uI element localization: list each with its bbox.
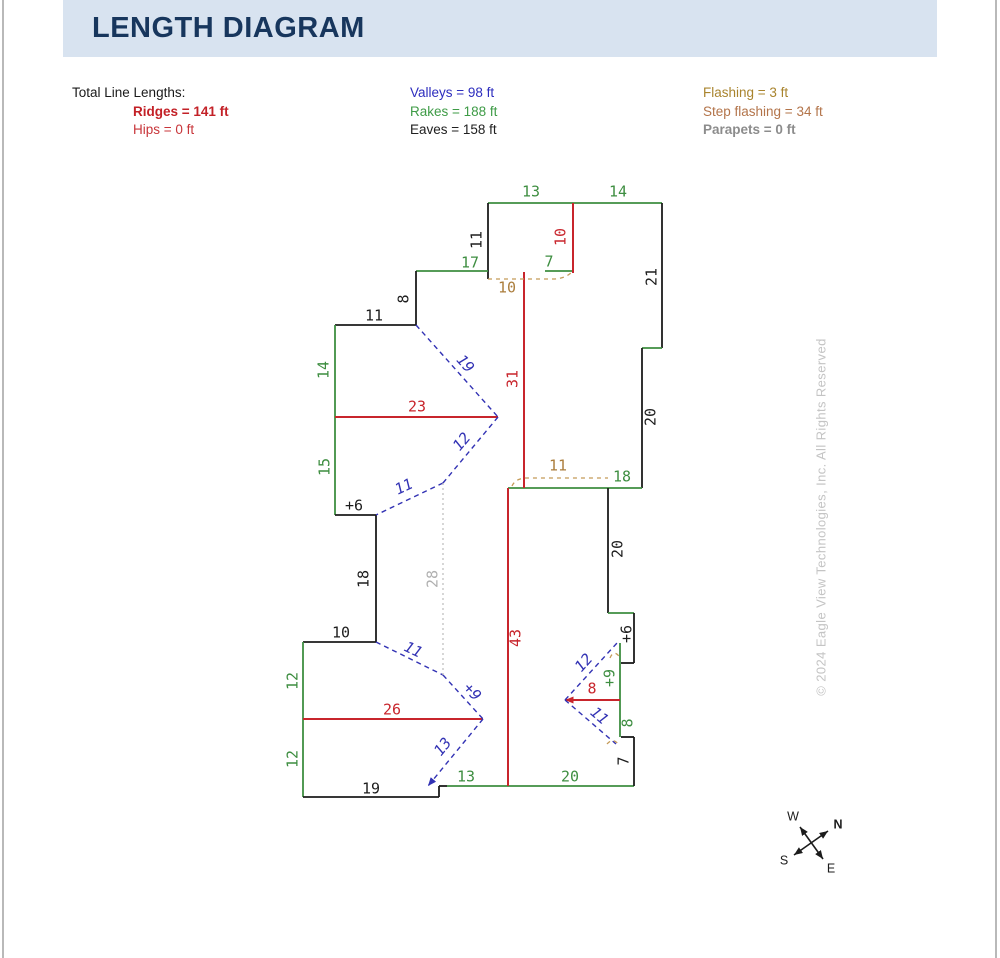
diagram-line-valley bbox=[416, 325, 498, 417]
diagram-label-valley: 12 bbox=[449, 429, 474, 454]
diagram-label-eave: 18 bbox=[355, 570, 373, 588]
diagram-label-eave: 7 bbox=[615, 756, 633, 765]
diagram-label-eave: 20 bbox=[642, 408, 660, 426]
diagram-label-rake: 8 bbox=[619, 718, 637, 727]
diagram-label-eave: +6 bbox=[345, 497, 363, 515]
diagram-label-rake: 18 bbox=[613, 468, 631, 486]
diagram-label-rake: +9 bbox=[601, 669, 619, 687]
diagram-label-rake: 20 bbox=[561, 768, 579, 786]
diagram-label-compass: N bbox=[833, 817, 842, 831]
diagram-label-compass: E bbox=[827, 861, 835, 875]
diagram-label-valley: 11 bbox=[401, 638, 425, 662]
diagram-line-step bbox=[512, 478, 608, 486]
diagram-label-valley: +9 bbox=[460, 679, 485, 704]
diagram-label-eave: 11 bbox=[365, 307, 383, 325]
diagram-label-compass: W bbox=[787, 809, 799, 823]
diagram-label-compass: S bbox=[780, 853, 788, 867]
diagram-label-rake: 15 bbox=[316, 458, 334, 476]
diagram-label-valley: 11 bbox=[392, 475, 416, 499]
diagram-line-valley bbox=[565, 700, 616, 744]
diagram-label-rake: 14 bbox=[315, 361, 333, 379]
diagram-label-eave: 20 bbox=[609, 540, 627, 558]
diagram-label-ridge: 43 bbox=[507, 629, 525, 647]
diagram-label-eave: +6 bbox=[618, 625, 636, 643]
diagram-label-valley: 19 bbox=[453, 351, 478, 376]
diagram-line-compass bbox=[794, 831, 828, 855]
diagram-label-valley: 13 bbox=[430, 734, 455, 759]
compass-rose: WNSE bbox=[780, 809, 843, 875]
diagram-label-rake: 13 bbox=[522, 183, 540, 201]
report-page: LENGTH DIAGRAM Total Line Lengths:Ridges… bbox=[0, 0, 1000, 958]
diagram-label-eave: 21 bbox=[643, 268, 661, 286]
diagram-label-ridge: 26 bbox=[383, 701, 401, 719]
diagram-line-valley bbox=[443, 417, 498, 483]
diagram-label-rake: 14 bbox=[609, 183, 627, 201]
diagram-label-rake: 12 bbox=[284, 750, 302, 768]
diagram-label-eave: 11 bbox=[468, 231, 486, 249]
diagram-label-eave: 19 bbox=[362, 780, 380, 798]
diagram-label-hidden: 28 bbox=[424, 570, 442, 588]
diagram-label-eave: 10 bbox=[332, 624, 350, 642]
diagram-label-rake: 13 bbox=[457, 768, 475, 786]
diagram-label-eave: 8 bbox=[395, 294, 413, 303]
diagram-label-rake: 12 bbox=[284, 672, 302, 690]
diagram-label-valley: 11 bbox=[587, 703, 612, 728]
diagram-label-watermark: © 2024 Eagle View Technologies, Inc. All… bbox=[813, 338, 828, 695]
diagram-label-ridge: 10 bbox=[552, 228, 570, 246]
diagram-label-ridge: 8 bbox=[587, 680, 596, 698]
diagram-label-valley: 12 bbox=[571, 650, 596, 675]
diagram-label-step: 10 bbox=[498, 279, 516, 297]
diagram-label-ridge: 31 bbox=[504, 370, 522, 388]
diagram-label-rake: 7 bbox=[544, 253, 553, 271]
diagram-labels-group: 1314111017710218111419312320121511+61118… bbox=[284, 183, 829, 798]
diagram-label-step: 11 bbox=[549, 457, 567, 475]
diagram-label-rake: 17 bbox=[461, 254, 479, 272]
diagram-svg: 1314111017710218111419312320121511+61118… bbox=[0, 0, 1000, 958]
diagram-label-ridge: 23 bbox=[408, 398, 426, 416]
